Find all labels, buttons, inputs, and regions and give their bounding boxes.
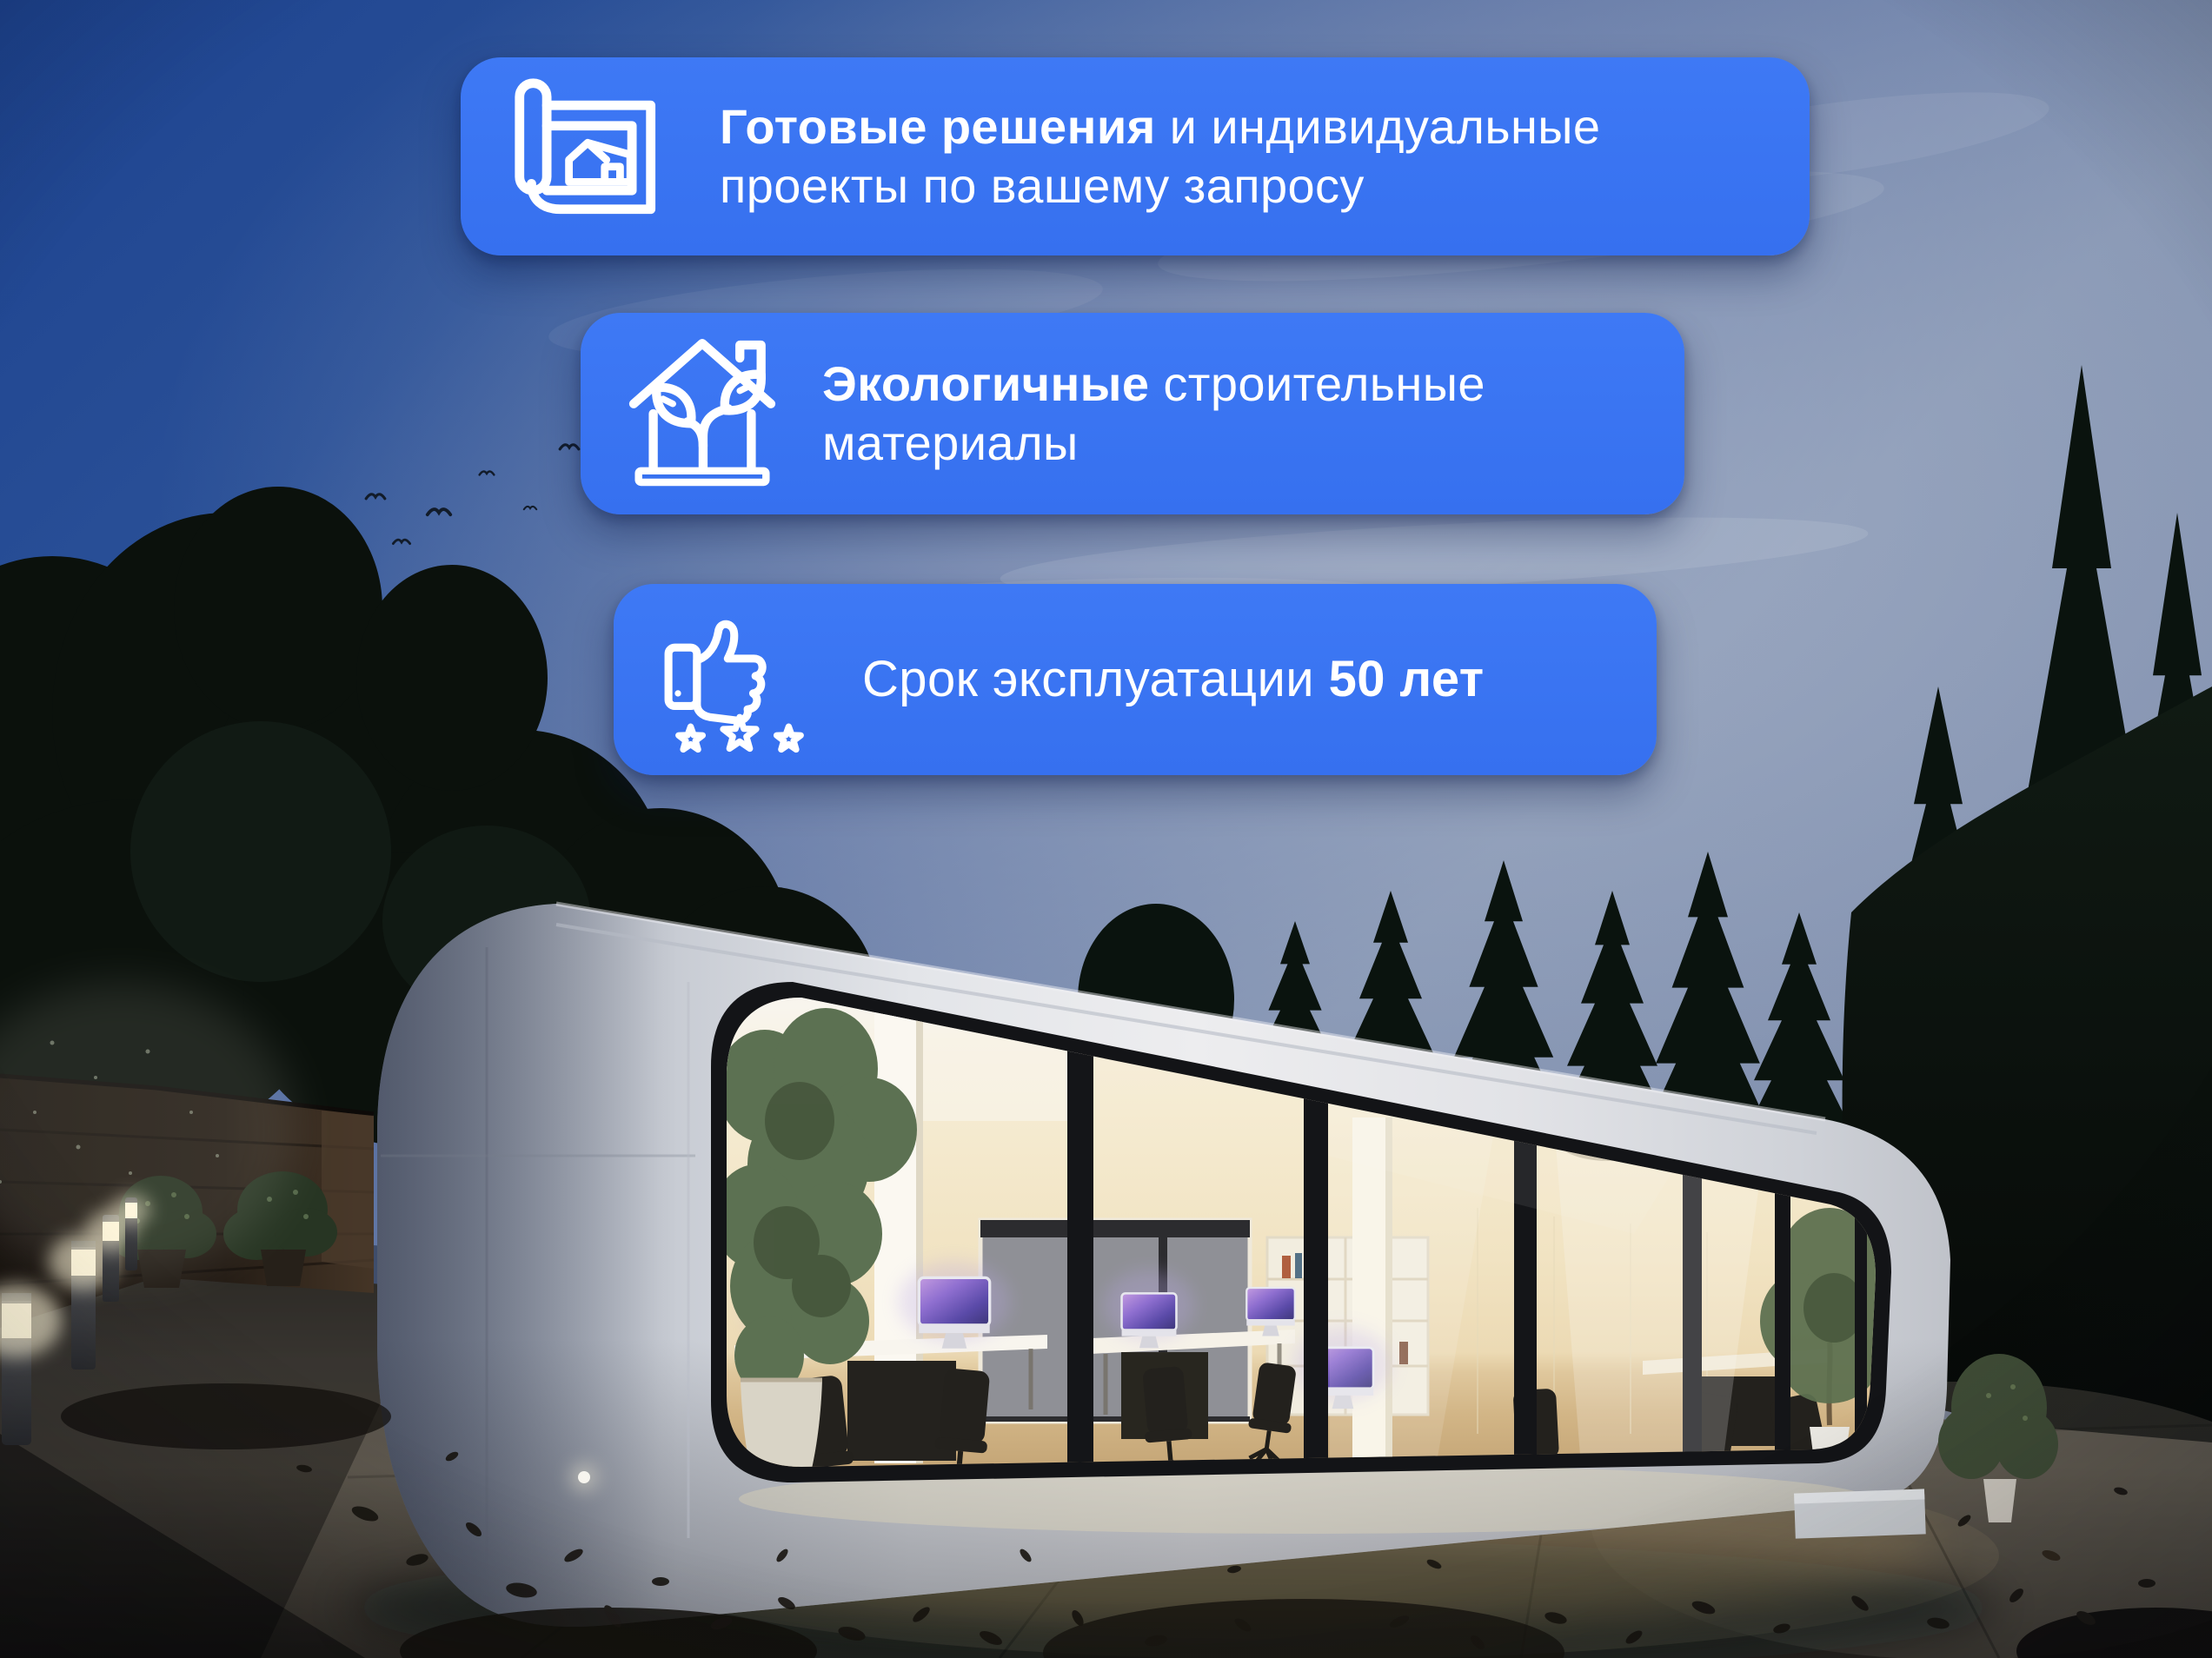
banner-text: Срок эксплуатации 50 лет [862,650,1485,709]
banner-regular-text: Срок эксплуатации [862,651,1329,707]
banner-bold-text: Готовые решения [720,99,1156,154]
banner-text: Экологичные строительные материалы [822,355,1485,473]
banner-text: Готовые решения и индивидуальные проекты… [720,97,1600,216]
banner-service-life: Срок эксплуатации 50 лет [614,584,1657,775]
banner-regular-text: и индивидуальные [1156,99,1601,154]
banner-bold-text: 50 лет [1329,651,1485,707]
banner-line: Срок эксплуатации 50 лет [862,650,1485,709]
banner-regular-text: строительные [1149,356,1485,411]
promo-graphic: Готовые решения и индивидуальные проекты… [0,0,2212,1658]
banner-ready-solutions: Готовые решения и индивидуальные проекты… [461,57,1810,255]
banner-line: Готовые решения и индивидуальные [720,97,1600,156]
banner-line: Экологичные строительные [822,355,1485,414]
blueprint-house-icon [509,71,680,242]
banner-line: материалы [822,414,1485,473]
banner-eco-materials: Экологичные строительные материалы [581,313,1684,514]
banner-line: проекты по вашему запросу [720,156,1600,216]
banner-regular-text: материалы [822,415,1079,470]
banner-regular-text: проекты по вашему запросу [720,158,1365,213]
thumbs-up-stars-icon [661,597,819,762]
banner-bold-text: Экологичные [822,356,1149,411]
eco-house-sprout-icon [621,332,784,495]
